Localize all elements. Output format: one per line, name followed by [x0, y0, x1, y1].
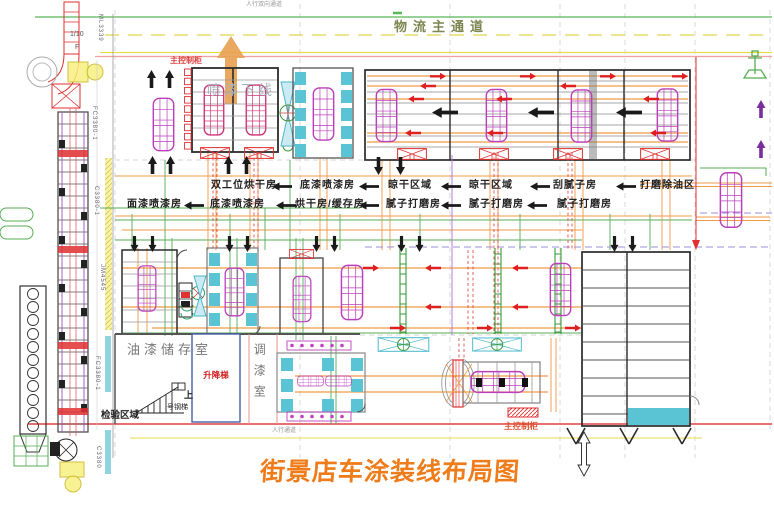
control-strip: [185, 69, 192, 149]
ref-col-top: ML3339: [97, 14, 103, 42]
ref-col-fc1: FC3380-1: [91, 106, 97, 141]
pedestrian-top-label: 人行双向通道: [246, 2, 282, 9]
flow-label-topcoat-booth: 面漆喷漆房: [127, 199, 182, 210]
flow-label-primer-booth-1: 底漆喷漆房: [300, 180, 355, 191]
ref-col-c1: C3380-1: [93, 186, 99, 216]
flag-mark: F: [75, 44, 79, 52]
flow-label-degrease-area: 打磨除油区: [640, 180, 695, 191]
reference-column: [97, 14, 113, 474]
hydrant-icon: [744, 51, 766, 78]
paint-offline-note: 喷漆下线: [207, 83, 275, 98]
paint-mixing-label: 调漆室: [252, 343, 265, 406]
filter-cells: [295, 72, 352, 157]
flow-label-putty-sanding-1: 腻子打磨房: [386, 199, 441, 210]
elevator-label: 升降梯: [192, 371, 240, 380]
exhaust-fan: [442, 359, 475, 407]
drawing-title: 街景店车涂装线布局图: [249, 459, 531, 487]
stair-up-label: 上: [184, 391, 193, 401]
flow-label-airdry-2: 晾干区域: [469, 180, 513, 191]
filter-cells: [209, 253, 257, 326]
scale-mark: 1/10: [70, 31, 84, 39]
logistics-channel-label: 物流主通道: [394, 20, 489, 34]
flow-label-putty-room: 刮腻子房: [553, 180, 597, 191]
stair-name-label: 号钢梯: [167, 404, 188, 412]
paint-line-layout-diagram: 人行双向通道 物流主通道 主控制柜 喷漆下线 双工位烘干房 底漆喷漆房 晾干区域…: [0, 0, 774, 505]
ref-col-c2: C3380: [95, 446, 101, 469]
flow-label-dry-buffer-room: 烘干房/缓存房: [295, 199, 365, 210]
left-machinery: [0, 2, 103, 492]
paint-storage-label: 油漆储存室: [127, 343, 212, 357]
pedestrian-bottom-label: 人行通道: [272, 428, 296, 435]
ref-col-jm: JM4545: [99, 264, 105, 291]
inspection-area-label: 检验区域: [101, 411, 139, 421]
ref-col-fc2: FC3380-1: [94, 356, 100, 391]
control-tag: [508, 408, 538, 417]
control-cabinet-top-label: 主控制柜: [170, 57, 202, 66]
flow-label-primer-booth-2: 底漆喷漆房: [210, 199, 265, 210]
flow-label-putty-sanding-2: 腻子打磨房: [469, 199, 524, 210]
corridor-lines: [28, 13, 772, 438]
control-cabinet-bottom-label: 主控制柜: [504, 422, 538, 431]
flow-label-drying-2station: 双工位烘干房: [211, 180, 277, 191]
diagram-linework: [0, 0, 774, 505]
flow-label-putty-sanding-3: 腻子打磨房: [557, 199, 612, 210]
flow-label-airdry-1: 晾干区域: [388, 180, 432, 191]
big-rack: [567, 252, 699, 476]
